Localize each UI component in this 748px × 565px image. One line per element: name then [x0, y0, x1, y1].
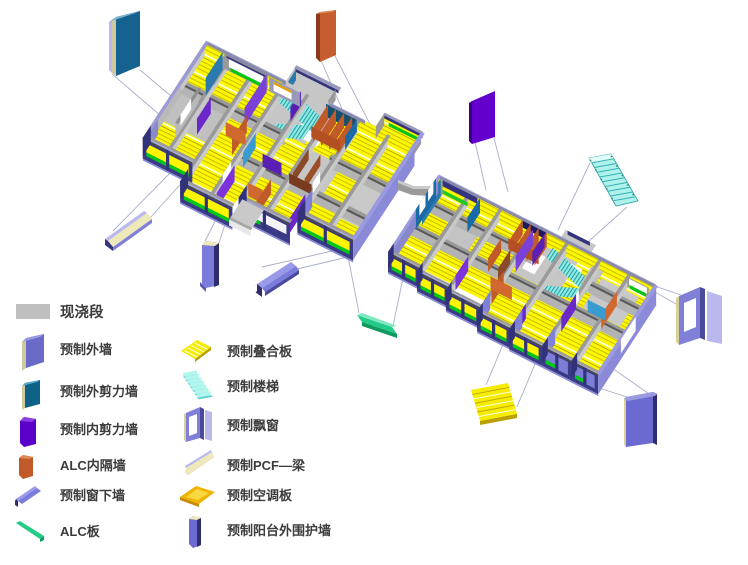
svg-text:预制窗下墙: 预制窗下墙 — [60, 488, 125, 503]
svg-text:预制叠合板: 预制叠合板 — [227, 344, 293, 359]
svg-text:预制阳台外围护墙: 预制阳台外围护墙 — [227, 523, 331, 538]
svg-text:预制内剪力墙: 预制内剪力墙 — [60, 422, 138, 437]
svg-text:预制楼梯: 预制楼梯 — [227, 379, 279, 394]
svg-text:现浇段: 现浇段 — [60, 303, 104, 321]
svg-text:预制外剪力墙: 预制外剪力墙 — [60, 384, 138, 399]
svg-text:ALC板: ALC板 — [60, 524, 101, 539]
svg-text:ALC内隔墙: ALC内隔墙 — [60, 458, 126, 473]
svg-text:预制外墙: 预制外墙 — [60, 342, 112, 357]
svg-text:预制PCF—梁: 预制PCF—梁 — [227, 458, 306, 473]
svg-text:预制飘窗: 预制飘窗 — [227, 418, 279, 433]
svg-text:预制空调板: 预制空调板 — [227, 488, 293, 503]
